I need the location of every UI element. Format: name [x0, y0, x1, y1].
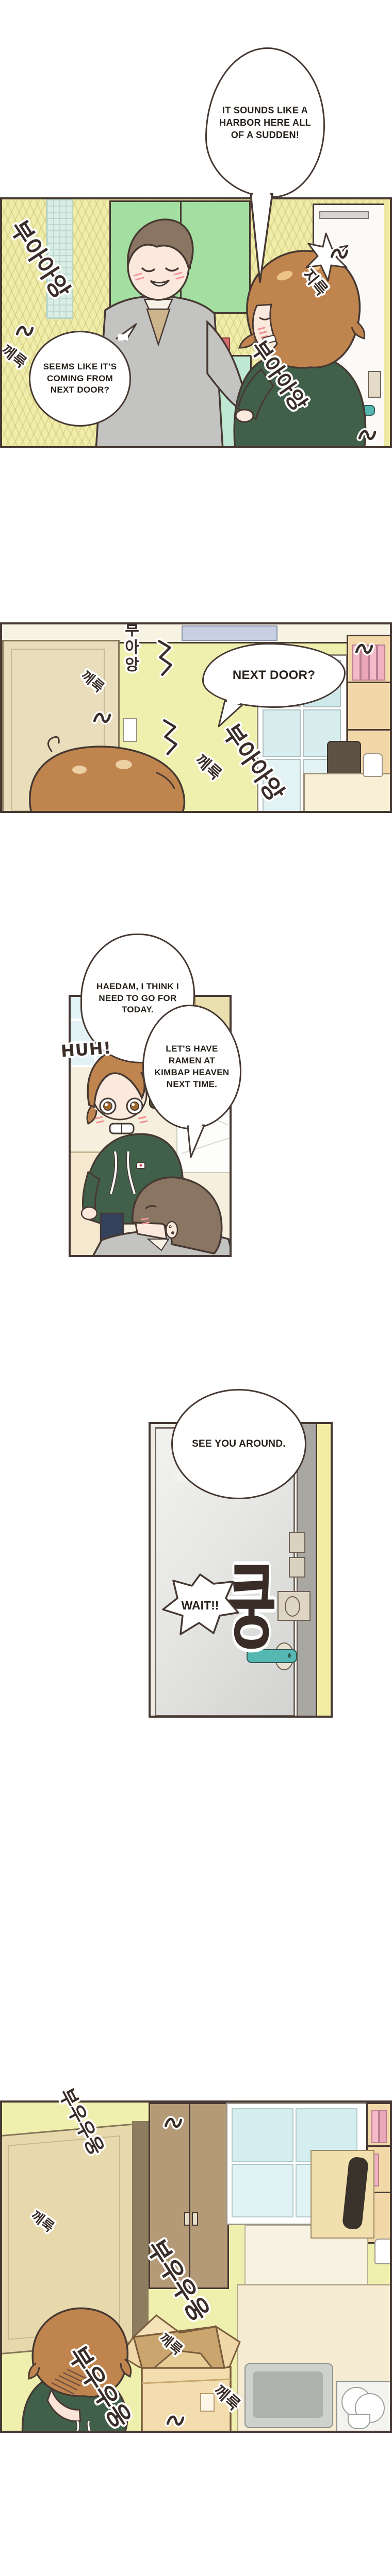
- book: [379, 2110, 387, 2143]
- panel-5-moving-boxes: 부우우웅 께룩 께룩 께룩: [0, 2100, 392, 2433]
- handle-dot: [288, 1653, 291, 1658]
- webtoon-page: 부아아앙 께룩 지륵 부아아앙 SEEMS LIKE IT'S COMING F…: [0, 0, 392, 2576]
- door-hinge: [289, 1557, 305, 1578]
- squiggle-icon: [15, 322, 34, 338]
- squiggle-icon: [164, 2114, 183, 2130]
- squiggle-icon: [358, 426, 377, 443]
- dark-slot: [342, 2156, 369, 2230]
- door-hinge: [289, 1532, 305, 1553]
- zigzag-icon: [160, 718, 181, 756]
- shelf-line: [368, 2145, 392, 2147]
- beige-unit: [311, 2150, 374, 2239]
- lock-cylinder: [285, 1596, 300, 1617]
- burst-text: WAIT!!: [160, 1572, 240, 1638]
- door-lock-box: [277, 1591, 311, 1621]
- bubble-tail: [182, 1121, 208, 1159]
- sfx-vroom-top: 부아앙: [119, 622, 141, 674]
- squiggle-icon: [93, 709, 111, 725]
- squiggle-icon: [166, 2412, 185, 2428]
- wardrobe-handle: [184, 2212, 190, 2226]
- sink-basin: [253, 2371, 323, 2418]
- wall-strip: [316, 1424, 333, 1718]
- zigzag-icon: [155, 639, 175, 677]
- bubble-tail: [244, 187, 277, 285]
- sink: [244, 2363, 333, 2428]
- bubble-tail: [216, 697, 247, 728]
- bubble-tail: [113, 321, 139, 342]
- book: [371, 2110, 379, 2143]
- glass-pane: [232, 2108, 293, 2162]
- glass-pane: [232, 2164, 293, 2217]
- speech-bubble-next-door-guess: SEEMS LIKE IT'S COMING FROM NEXT DOOR?: [29, 331, 131, 427]
- panel-1-hallway-talk: 부아아앙 께룩 지륵 부아아앙 SEEMS LIKE IT'S COMING F…: [0, 197, 392, 448]
- dish-rack: [336, 2381, 392, 2433]
- wardrobe-handle: [192, 2212, 198, 2226]
- squiggle-icon: [330, 245, 349, 261]
- squiggle-icon: [355, 640, 373, 656]
- panel-2-room-wide: 부아앙 께룩 께룩 부아아앙 NEXT DOOR?: [0, 622, 392, 813]
- burst-bubble-wait: WAIT!!: [160, 1572, 240, 1638]
- panel-2-mc-head: [2, 624, 392, 813]
- speech-bubble-harbor: IT SOUNDS LIKE A HARBOR HERE ALL OF A SU…: [205, 47, 325, 198]
- sfx-huh: HUH!: [60, 1038, 112, 1061]
- speech-bubble-see-you: SEE YOU AROUND.: [171, 1389, 306, 1499]
- bowl: [348, 2414, 370, 2429]
- paper-roll: [374, 2239, 392, 2264]
